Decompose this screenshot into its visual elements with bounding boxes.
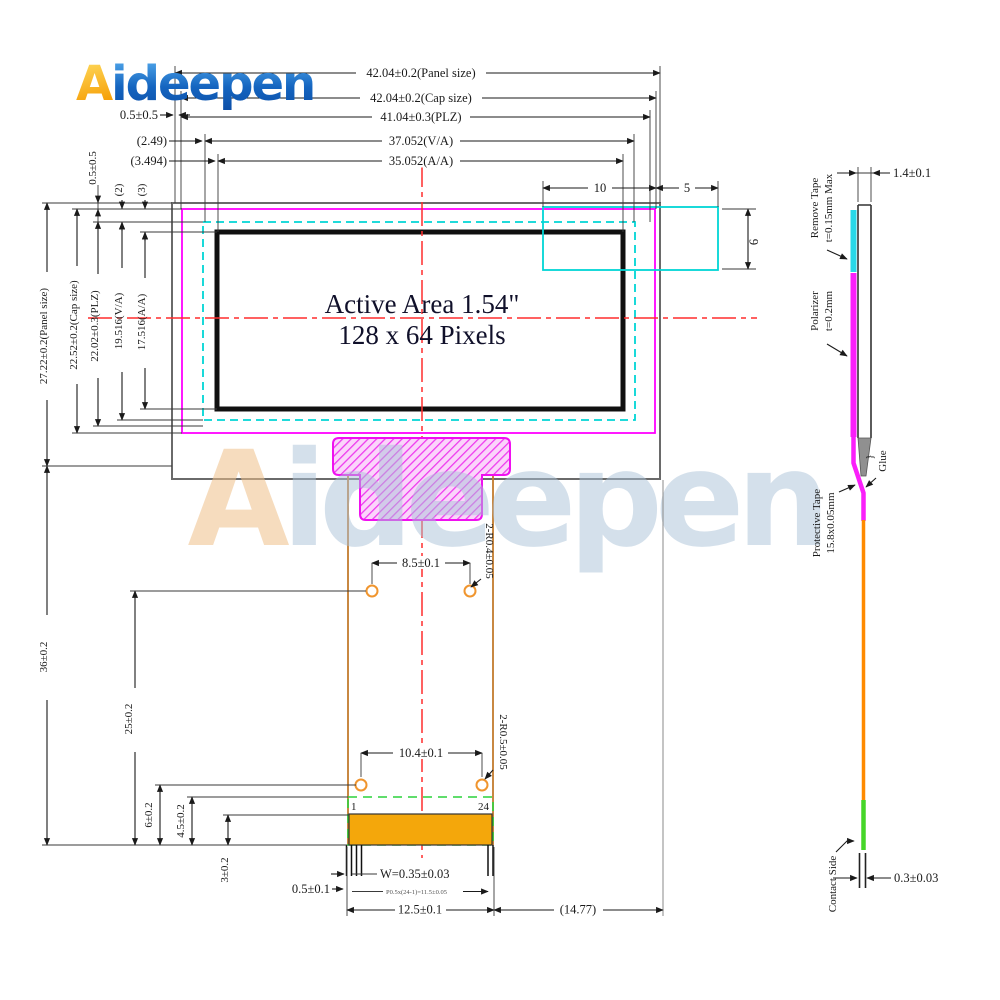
dim-offset-05-vertical: 0.5±0.5 — [87, 151, 99, 185]
dim-offset-2: (2) — [113, 183, 125, 196]
active-area-resolution: 128 x 64 Pixels — [338, 320, 505, 350]
dim-plz-height: 22.02±0.3(PLZ) — [89, 290, 101, 362]
dim-edge-1477: (14.77) — [560, 903, 596, 917]
side-view — [851, 205, 872, 888]
dim-cap-width: 42.04±0.2(Cap size) — [370, 91, 472, 105]
dim-fpc-25: 25±0.2 — [123, 704, 135, 735]
dim-fpc-36: 36±0.2 — [38, 642, 50, 673]
dim-hole-104: 10.4±0.1 — [399, 746, 443, 760]
pin-label-24: 24 — [478, 801, 490, 813]
label-remove-tape: Remove Tape — [809, 178, 821, 239]
dim-plz-width: 41.04±0.3(PLZ) — [380, 110, 461, 124]
dim-fpc-width: 12.5±0.1 — [398, 903, 442, 917]
watermark-logo: Aideepen — [188, 423, 823, 577]
dim-tab-6: 6 — [747, 239, 761, 245]
mechanical-drawing: Aideepen — [0, 0, 1000, 1000]
dim-fpc-thickness: 0.3±0.03 — [894, 871, 938, 885]
label-protective-tape: Protective Tape — [811, 489, 823, 557]
alignment-hole — [367, 586, 378, 597]
dim-fpc-3: 3±0.2 — [219, 857, 231, 882]
dim-cap-height: 22.52±0.2(Cap size) — [68, 280, 80, 370]
label-polarizer: Polarizer — [809, 291, 821, 331]
label-protective-tape-size: 15.8x0.05mm — [825, 492, 837, 554]
label-glue: Glue — [877, 450, 889, 472]
side-polarizer — [851, 273, 857, 437]
glue-brace-icon: } — [864, 454, 876, 459]
active-area-title: Active Area 1.54" — [325, 289, 520, 319]
watermark-letter-a: A — [188, 423, 290, 577]
contact-pad — [349, 814, 492, 845]
dim-panel-height: 27.22±0.2(Panel size) — [38, 288, 50, 384]
side-glass — [858, 205, 871, 438]
drawing-canvas: Aideepen — [0, 0, 1000, 1000]
dim-va-height: 19.516(V/A) — [113, 292, 125, 349]
dim-fpc-45: 4.5±0.2 — [175, 804, 187, 838]
label-polarizer-thickness: t=0.2mm — [823, 290, 835, 331]
dim-finger-05: 0.5±0.1 — [292, 882, 330, 896]
dim-tab-5: 5 — [684, 181, 690, 195]
pin-label-1: 1 — [351, 801, 357, 813]
dim-finger-width: W=0.35±0.03 — [380, 867, 449, 881]
dim-fpc-6: 6±0.2 — [143, 802, 155, 827]
dim-offset-249: (2.49) — [137, 134, 167, 148]
brand-logo-a: A — [76, 56, 113, 112]
dim-hole-r04: 2-R0.4±0.05 — [483, 523, 495, 579]
brand-logo-rest: ideepen — [111, 56, 314, 112]
dim-pitch: P0.5x(24-1)=11.5±0.05 — [386, 889, 447, 896]
alignment-hole — [356, 780, 367, 791]
alignment-hole — [477, 780, 488, 791]
brand-logo: Aideepen — [76, 56, 314, 112]
dim-aa-width: 35.052(A/A) — [389, 154, 453, 168]
dim-offset-3494: (3.494) — [131, 154, 167, 168]
dim-aa-height: 17.516(A/A) — [136, 293, 148, 350]
dim-glass-thickness: 1.4±0.1 — [893, 166, 931, 180]
side-remove-tape — [851, 210, 857, 272]
dim-va-width: 37.052(V/A) — [389, 134, 453, 148]
alignment-hole — [465, 586, 476, 597]
label-contact-side: Contact Side — [827, 856, 839, 913]
side-stiffener — [860, 853, 866, 888]
dim-offset-3: (3) — [136, 183, 148, 196]
label-remove-tape-thickness: t=0.15mm Max — [823, 173, 835, 242]
dim-hole-85: 8.5±0.1 — [402, 556, 440, 570]
active-area-text: Active Area 1.54" 128 x 64 Pixels — [325, 289, 520, 350]
remove-tape-tab — [543, 207, 718, 270]
dim-hole-r05: 2-R0.5±0.05 — [497, 714, 509, 770]
dim-tab-10: 10 — [594, 181, 607, 195]
watermark-rest: ideepen — [282, 423, 823, 577]
dim-panel-width: 42.04±0.2(Panel size) — [366, 66, 475, 80]
